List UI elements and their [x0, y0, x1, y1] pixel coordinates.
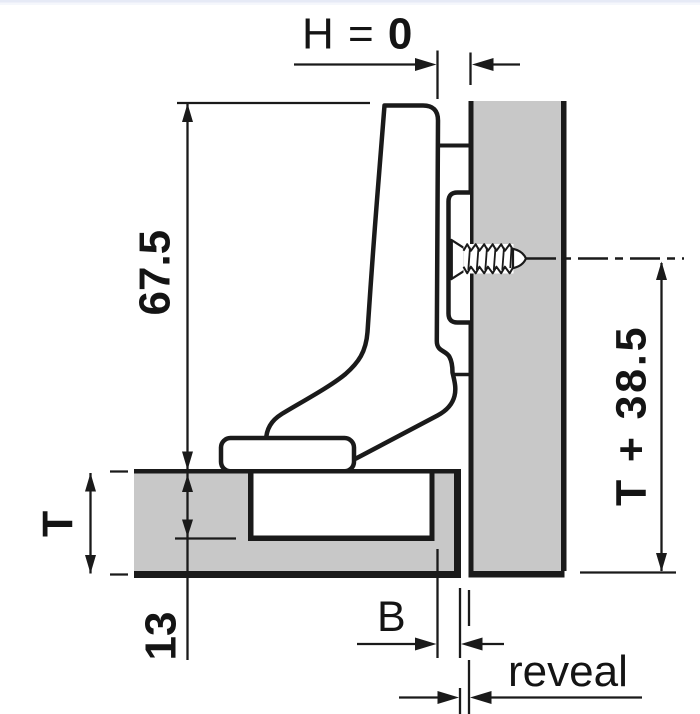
- svg-text:T + 38.5: T + 38.5: [608, 325, 656, 506]
- svg-text:67.5: 67.5: [131, 230, 180, 316]
- svg-text:H = 0: H = 0: [302, 10, 413, 59]
- svg-text:reveal: reveal: [508, 647, 628, 696]
- svg-text:B: B: [377, 593, 406, 641]
- svg-text:T: T: [34, 511, 82, 537]
- svg-text:13: 13: [137, 612, 186, 661]
